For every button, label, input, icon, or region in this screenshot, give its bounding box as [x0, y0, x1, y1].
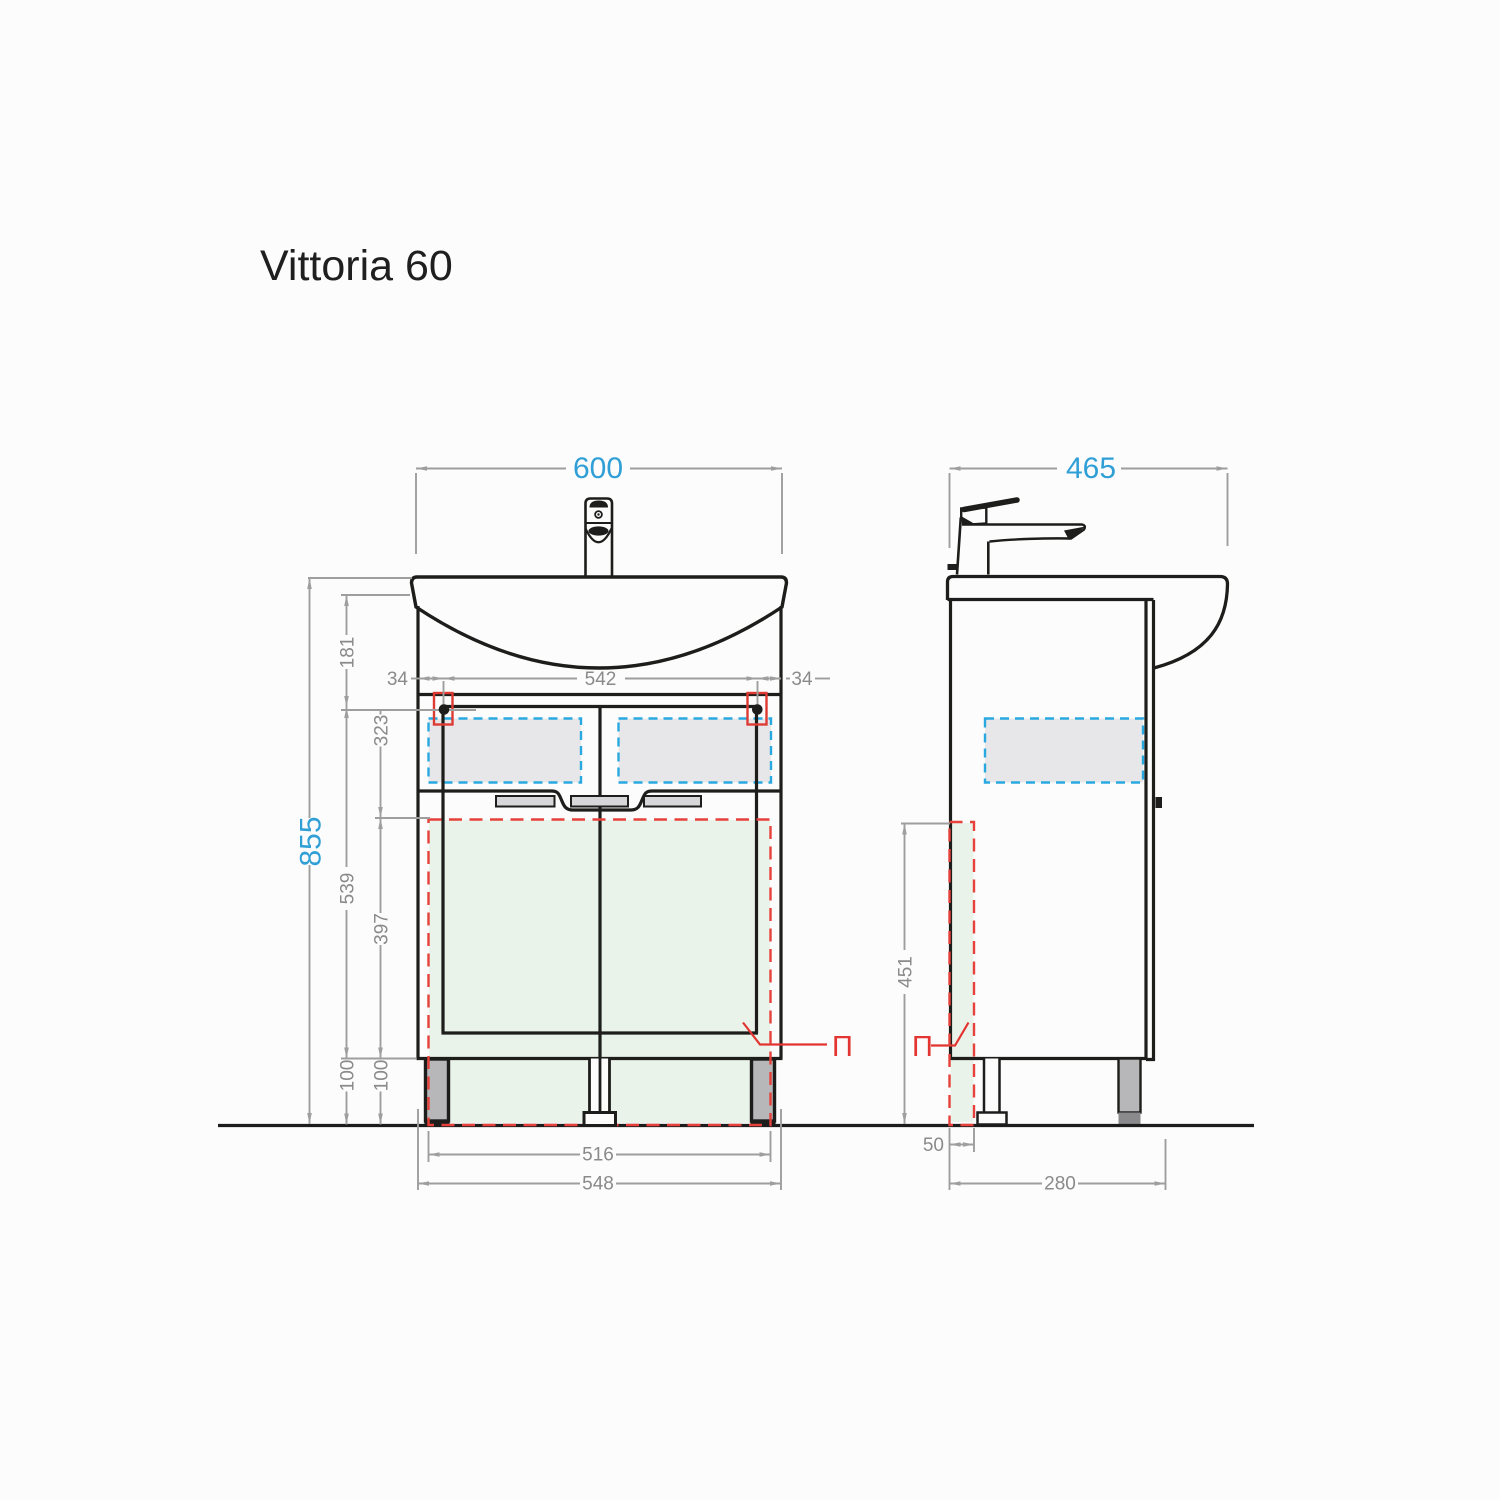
svg-text:100: 100 [338, 1060, 359, 1092]
svg-text:34: 34 [387, 669, 409, 690]
svg-text:П: П [912, 1031, 933, 1063]
svg-text:516: 516 [582, 1145, 614, 1166]
svg-text:280: 280 [1044, 1174, 1076, 1195]
svg-text:542: 542 [585, 669, 617, 690]
svg-text:181: 181 [338, 637, 359, 669]
svg-text:50: 50 [923, 1135, 944, 1156]
svg-text:465: 465 [1066, 452, 1116, 485]
svg-text:451: 451 [896, 956, 917, 988]
svg-text:548: 548 [582, 1174, 614, 1195]
svg-text:Vittoria 60: Vittoria 60 [260, 242, 453, 290]
svg-text:539: 539 [338, 873, 359, 905]
svg-text:П: П [832, 1031, 853, 1063]
svg-text:34: 34 [791, 669, 813, 690]
svg-text:600: 600 [573, 452, 623, 485]
svg-text:397: 397 [372, 913, 393, 945]
svg-text:855: 855 [295, 816, 328, 866]
svg-text:323: 323 [372, 715, 393, 747]
svg-text:100: 100 [372, 1060, 393, 1092]
